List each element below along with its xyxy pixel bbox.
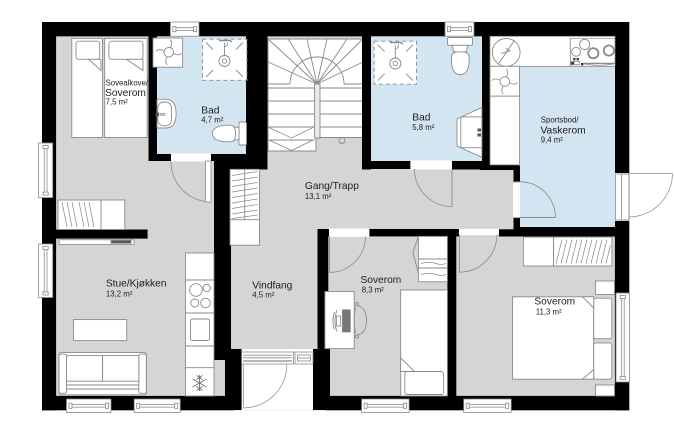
svg-text:Soverom: Soverom — [534, 297, 575, 308]
svg-text:11,3 m²: 11,3 m² — [536, 307, 562, 316]
svg-text:4,7 m²: 4,7 m² — [201, 116, 223, 125]
svg-text:Gang/Trapp: Gang/Trapp — [305, 181, 359, 192]
svg-text:8,3 m²: 8,3 m² — [362, 286, 384, 295]
svg-text:Sportsbod/: Sportsbod/ — [541, 116, 580, 125]
svg-text:Bad: Bad — [412, 112, 430, 123]
svg-text:Soverom: Soverom — [361, 275, 402, 286]
svg-text:13,1 m²: 13,1 m² — [305, 192, 332, 201]
svg-text:Stue/Kjøkken: Stue/Kjøkken — [106, 278, 167, 289]
svg-text:9,4 m²: 9,4 m² — [541, 136, 563, 145]
svg-text:Vaskerom: Vaskerom — [541, 125, 586, 136]
svg-text:4,5 m²: 4,5 m² — [252, 291, 274, 300]
svg-text:Sovealkove/: Sovealkove/ — [106, 79, 149, 88]
svg-text:13,2 m²: 13,2 m² — [106, 289, 133, 298]
svg-text:7,5 m²: 7,5 m² — [106, 97, 128, 106]
svg-text:5,8 m²: 5,8 m² — [412, 123, 434, 132]
